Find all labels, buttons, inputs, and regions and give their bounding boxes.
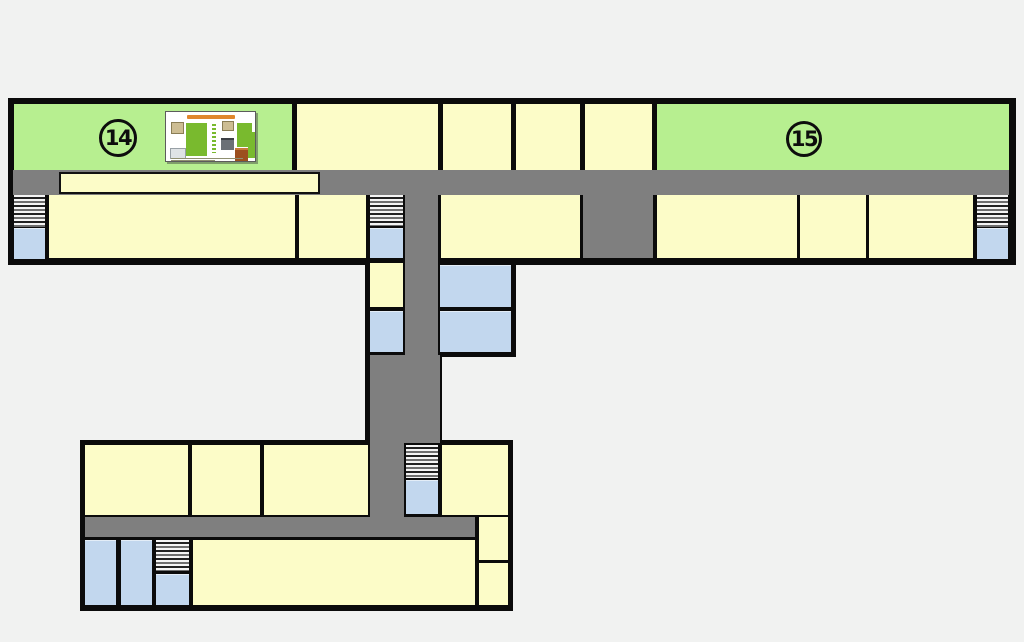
- room-stem-blue-right-1: [440, 265, 511, 307]
- room-top-d: [585, 104, 652, 170]
- stairs-icon-stem: [406, 445, 438, 478]
- room-row2-c: [441, 195, 580, 258]
- elevator-northwest: [14, 228, 45, 259]
- room-lower-b: [192, 445, 260, 515]
- poster-caption-line: [171, 158, 243, 159]
- room-lower-small-1: [479, 517, 508, 560]
- poster-machine-icon: [248, 132, 255, 158]
- poster-bin-icon: [235, 148, 248, 161]
- room-row2-d: [657, 195, 797, 258]
- room-14-number-badge: 14: [99, 119, 137, 157]
- room-lower-large: [193, 540, 475, 605]
- corridor-right-open-area: [583, 195, 653, 258]
- poster-machine-icon: [186, 123, 207, 156]
- elevator-southwest-1: [85, 540, 116, 605]
- stairs-icon-center: [370, 195, 403, 226]
- corridor-vertical-upper: [405, 195, 438, 359]
- room-lower-small-2: [479, 563, 508, 605]
- corridor-lower-band: [85, 517, 475, 537]
- room-stem-small: [370, 263, 403, 307]
- room-top-b: [443, 104, 511, 170]
- floor-plan-map: 14 15: [0, 0, 1024, 642]
- corridor-vertical-mid: [370, 355, 440, 443]
- poster-printer-icon: [221, 138, 234, 150]
- room-stem-blue-left: [370, 311, 403, 352]
- elevator-southwest-3: [156, 574, 189, 605]
- room-lower-a: [85, 445, 188, 515]
- stairs-icon-northwest: [14, 195, 45, 227]
- room-14-poster: [165, 111, 256, 162]
- room-row2-b: [299, 195, 366, 258]
- room-lower-d: [442, 445, 508, 515]
- room-top-c: [516, 104, 580, 170]
- poster-box-icon: [222, 121, 234, 131]
- room-15-number-badge: 15: [786, 121, 822, 157]
- poster-caption-line: [171, 160, 215, 161]
- elevator-northeast: [977, 228, 1008, 259]
- stairs-icon-southwest: [156, 540, 189, 571]
- poster-dotted-path-icon: [212, 124, 216, 153]
- room-lower-c: [264, 445, 368, 515]
- poster-box-icon: [171, 122, 184, 134]
- room-row2-f: [869, 195, 973, 258]
- room-strip-narrow: [59, 172, 320, 194]
- stairs-icon-northeast: [977, 195, 1008, 227]
- poster-title-bar: [187, 115, 235, 119]
- room-15: [657, 104, 1009, 170]
- elevator-stem: [406, 480, 438, 514]
- elevator-southwest-2: [121, 540, 152, 605]
- room-stem-blue-right-2: [440, 311, 511, 352]
- room-row2-a: [49, 195, 295, 258]
- elevator-center: [370, 228, 403, 258]
- room-row2-e: [800, 195, 866, 258]
- room-top-a: [297, 104, 438, 170]
